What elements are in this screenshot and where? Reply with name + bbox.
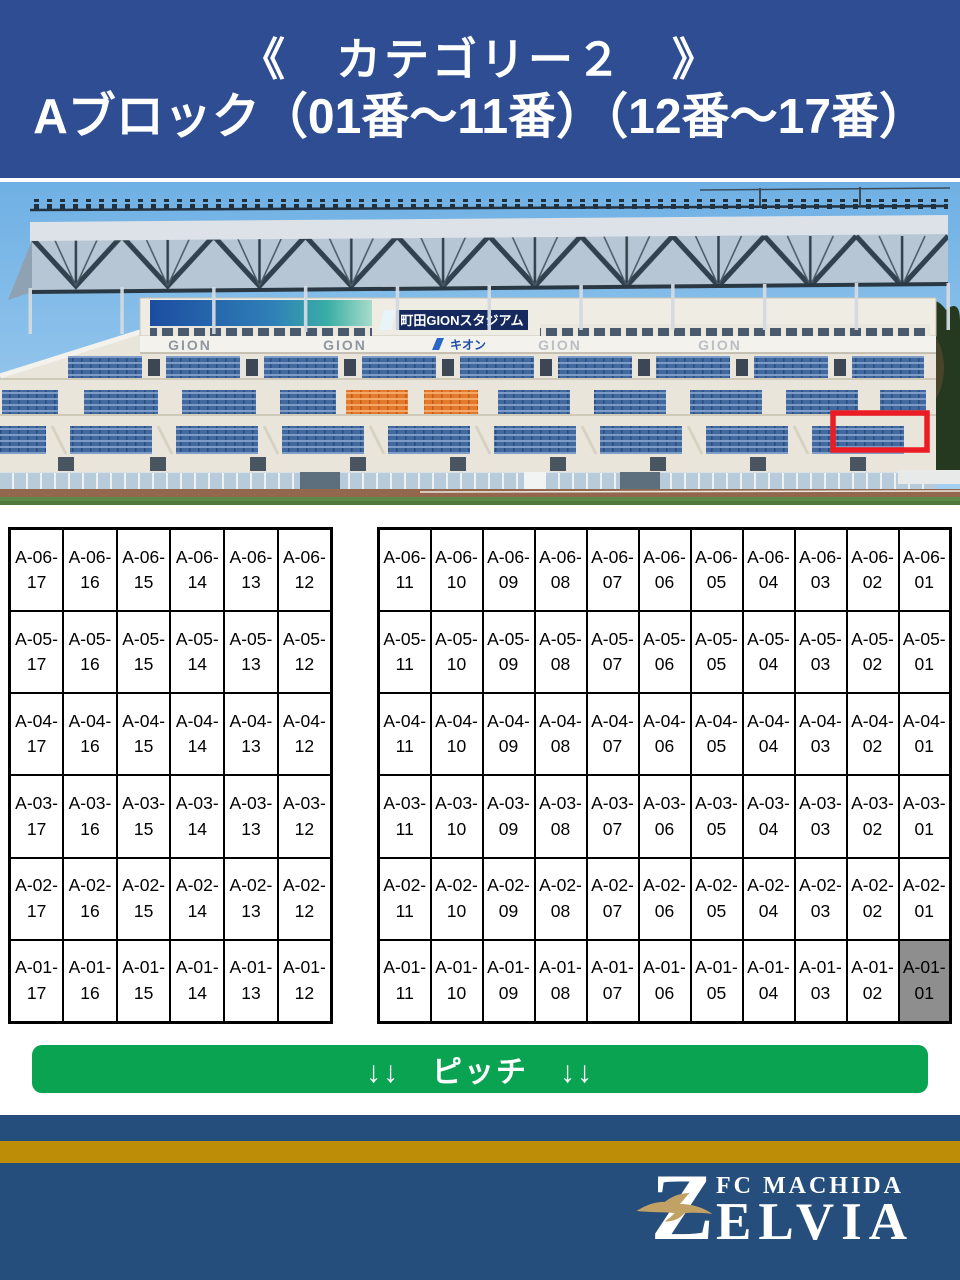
gion-sign: GION bbox=[538, 337, 582, 353]
seat-cell: A-02-12 bbox=[278, 858, 332, 940]
seat-cell: A-03-16 bbox=[63, 775, 117, 857]
seat-cell: A-05-07 bbox=[587, 611, 639, 693]
page-header: 《 カテゴリー２ 》 Aブロック（01番～11番）（12番～17番） bbox=[0, 0, 960, 178]
concourse-glass bbox=[0, 472, 936, 489]
seat-cell: A-05-08 bbox=[535, 611, 587, 693]
seat-cell: A-04-13 bbox=[224, 693, 278, 775]
seat-cell: A-03-09 bbox=[483, 775, 535, 857]
seat-cell: A-04-01 bbox=[899, 693, 951, 775]
orange-seat-block bbox=[346, 390, 408, 414]
seat-cell: A-02-07 bbox=[587, 858, 639, 940]
page-footer: Z FC MACHIDA ELVIA bbox=[0, 1115, 960, 1280]
seat-cell: A-03-03 bbox=[795, 775, 847, 857]
seat-cell: A-04-06 bbox=[639, 693, 691, 775]
seat-cell: A-01-05 bbox=[691, 940, 743, 1023]
seat-cell: A-03-13 bbox=[224, 775, 278, 857]
seat-cell: A-03-06 bbox=[639, 775, 691, 857]
seat-cell: A-04-14 bbox=[170, 693, 224, 775]
seat-cell: A-02-05 bbox=[691, 858, 743, 940]
seat-cell: A-06-05 bbox=[691, 529, 743, 612]
seat-cell: A-03-04 bbox=[743, 775, 795, 857]
seat-cell: A-05-10 bbox=[431, 611, 483, 693]
club-logo: Z FC MACHIDA ELVIA bbox=[651, 1173, 914, 1247]
seat-cell: A-02-10 bbox=[431, 858, 483, 940]
seat-cell: A-05-04 bbox=[743, 611, 795, 693]
seat-cell: A-05-06 bbox=[639, 611, 691, 693]
gion-sign: GION bbox=[323, 337, 367, 353]
seat-cell: A-02-17 bbox=[10, 858, 64, 940]
seat-cell: A-04-03 bbox=[795, 693, 847, 775]
seat-cell: A-03-01 bbox=[899, 775, 951, 857]
seat-cell: A-02-11 bbox=[379, 858, 431, 940]
seat-cell: A-01-13 bbox=[224, 940, 278, 1023]
seat-cell: A-03-08 bbox=[535, 775, 587, 857]
seat-cell: A-03-17 bbox=[10, 775, 64, 857]
seat-cell: A-05-17 bbox=[10, 611, 64, 693]
seat-cell: A-05-02 bbox=[847, 611, 899, 693]
seat-cell: A-04-09 bbox=[483, 693, 535, 775]
seat-cell: A-06-10 bbox=[431, 529, 483, 612]
seat-table-right: A-06-11A-06-10A-06-09A-06-08A-06-07A-06-… bbox=[377, 527, 952, 1024]
block-subtitle: Aブロック（01番～11番）（12番～17番） bbox=[33, 89, 927, 145]
seat-cell: A-04-04 bbox=[743, 693, 795, 775]
seat-cell: A-01-15 bbox=[117, 940, 171, 1023]
club-name-line2: ELVIA bbox=[716, 1198, 914, 1247]
seat-cell: A-03-02 bbox=[847, 775, 899, 857]
seat-cell: A-03-14 bbox=[170, 775, 224, 857]
seat-cell: A-06-13 bbox=[224, 529, 278, 612]
seat-cell: A-05-01 bbox=[899, 611, 951, 693]
seat-cell: A-06-06 bbox=[639, 529, 691, 612]
seat-cell: A-02-13 bbox=[224, 858, 278, 940]
seat-cell: A-02-04 bbox=[743, 858, 795, 940]
seat-cell: A-04-16 bbox=[63, 693, 117, 775]
seat-cell: A-05-15 bbox=[117, 611, 171, 693]
seat-cell: A-04-11 bbox=[379, 693, 431, 775]
seat-cell: A-05-05 bbox=[691, 611, 743, 693]
seat-cell: A-01-07 bbox=[587, 940, 639, 1023]
seat-cell: A-02-06 bbox=[639, 858, 691, 940]
seat-cell: A-05-12 bbox=[278, 611, 332, 693]
seat-cell: A-06-17 bbox=[10, 529, 64, 612]
stadium-photo: 町田GIONスタジアム GION GION GION GION キオン bbox=[0, 182, 960, 505]
seat-cell: A-02-14 bbox=[170, 858, 224, 940]
seat-cell: A-03-12 bbox=[278, 775, 332, 857]
seat-cell: A-03-11 bbox=[379, 775, 431, 857]
seat-cell: A-04-08 bbox=[535, 693, 587, 775]
seat-cell: A-04-05 bbox=[691, 693, 743, 775]
seat-cell: A-06-12 bbox=[278, 529, 332, 612]
seat-cell: A-03-15 bbox=[117, 775, 171, 857]
seat-cell: A-06-03 bbox=[795, 529, 847, 612]
seat-cell: A-05-14 bbox=[170, 611, 224, 693]
seat-cell: A-01-10 bbox=[431, 940, 483, 1023]
seat-cell: A-06-15 bbox=[117, 529, 171, 612]
seat-cell: A-04-12 bbox=[278, 693, 332, 775]
seat-cell: A-01-01 bbox=[899, 940, 951, 1023]
pitch-direction-banner: ↓↓ ピッチ ↓↓ bbox=[32, 1045, 928, 1093]
seat-cell: A-01-03 bbox=[795, 940, 847, 1023]
seat-cell: A-06-11 bbox=[379, 529, 431, 612]
middle-tier-seats bbox=[2, 390, 926, 414]
seat-cell: A-04-15 bbox=[117, 693, 171, 775]
seat-cell: A-06-09 bbox=[483, 529, 535, 612]
seat-cell: A-06-08 bbox=[535, 529, 587, 612]
seat-cell: A-02-09 bbox=[483, 858, 535, 940]
footer-main: Z FC MACHIDA ELVIA bbox=[0, 1163, 960, 1280]
seat-cell: A-02-16 bbox=[63, 858, 117, 940]
seat-cell: A-01-11 bbox=[379, 940, 431, 1023]
upper-tier-seats bbox=[68, 356, 924, 378]
seat-cell: A-02-08 bbox=[535, 858, 587, 940]
seat-cell: A-03-07 bbox=[587, 775, 639, 857]
seat-cell: A-01-06 bbox=[639, 940, 691, 1023]
seat-cell: A-01-16 bbox=[63, 940, 117, 1023]
seat-map: A-06-17A-06-16A-06-15A-06-14A-06-13A-06-… bbox=[0, 527, 960, 1024]
seat-cell: A-05-09 bbox=[483, 611, 535, 693]
seat-table-left: A-06-17A-06-16A-06-15A-06-14A-06-13A-06-… bbox=[8, 527, 333, 1024]
seat-cell: A-01-09 bbox=[483, 940, 535, 1023]
seat-cell: A-05-16 bbox=[63, 611, 117, 693]
seat-cell: A-01-08 bbox=[535, 940, 587, 1023]
seat-cell: A-05-13 bbox=[224, 611, 278, 693]
seat-cell: A-06-01 bbox=[899, 529, 951, 612]
footer-gold-stripe bbox=[0, 1141, 960, 1163]
seat-cell: A-04-07 bbox=[587, 693, 639, 775]
kion-sign: キオン bbox=[450, 338, 486, 352]
seat-cell: A-01-12 bbox=[278, 940, 332, 1023]
orange-seat-block bbox=[424, 390, 478, 414]
seat-cell: A-03-10 bbox=[431, 775, 483, 857]
seat-cell: A-02-03 bbox=[795, 858, 847, 940]
seat-cell: A-01-17 bbox=[10, 940, 64, 1023]
seat-cell: A-01-04 bbox=[743, 940, 795, 1023]
seat-cell: A-05-11 bbox=[379, 611, 431, 693]
seat-cell: A-06-04 bbox=[743, 529, 795, 612]
running-track bbox=[0, 489, 960, 497]
footer-blue-stripe bbox=[0, 1115, 960, 1141]
seat-cell: A-04-10 bbox=[431, 693, 483, 775]
seat-cell: A-04-02 bbox=[847, 693, 899, 775]
seat-cell: A-06-02 bbox=[847, 529, 899, 612]
seat-cell: A-01-02 bbox=[847, 940, 899, 1023]
seat-cell: A-04-17 bbox=[10, 693, 64, 775]
seat-cell: A-05-03 bbox=[795, 611, 847, 693]
seat-cell: A-02-01 bbox=[899, 858, 951, 940]
gion-sign: GION bbox=[168, 337, 212, 353]
seat-cell: A-06-14 bbox=[170, 529, 224, 612]
lower-tier-seats bbox=[0, 426, 904, 454]
seat-cell: A-06-16 bbox=[63, 529, 117, 612]
seat-cell: A-03-05 bbox=[691, 775, 743, 857]
category-title: 《 カテゴリー２ 》 bbox=[240, 35, 720, 85]
seat-cell: A-02-02 bbox=[847, 858, 899, 940]
seat-cell: A-06-07 bbox=[587, 529, 639, 612]
stadium-sign: 町田GIONスタジアム bbox=[400, 313, 523, 328]
seat-cell: A-01-14 bbox=[170, 940, 224, 1023]
gion-sign: GION bbox=[698, 337, 742, 353]
seat-cell: A-02-15 bbox=[117, 858, 171, 940]
